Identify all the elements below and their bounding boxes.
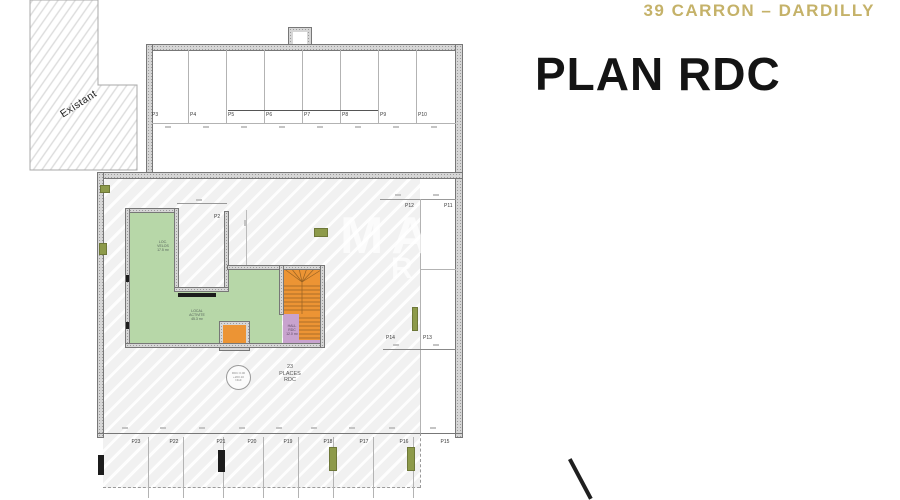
- stall-divider: [302, 50, 303, 123]
- wall-segment: [225, 212, 228, 291]
- dimension-text: [393, 126, 399, 128]
- dimension-text: [389, 427, 395, 429]
- dimension-text: [349, 427, 355, 429]
- parking-space-label: P13: [423, 335, 432, 341]
- parking-space-label: P19: [280, 439, 296, 445]
- stall-divider: [378, 50, 379, 123]
- stall-divider: [420, 199, 421, 433]
- parking-space-label: P5: [228, 112, 234, 118]
- slide: 39 CARRON – DARDILLY PLAN RDC Existant P…: [0, 0, 900, 500]
- existing-building-outline: [29, 0, 141, 174]
- parking-space-label: P8: [342, 112, 348, 118]
- wall-segment: [280, 266, 283, 314]
- places-count-note: 23 PLACES RDC: [268, 364, 312, 384]
- level-marker: RDC 0.00 +200.10 NGF: [226, 365, 251, 390]
- wall-segment: [321, 266, 324, 347]
- dimension-text: [355, 126, 361, 128]
- dim-line: [246, 210, 247, 265]
- landscape-strip: [330, 448, 336, 470]
- wall-lower-left: [98, 173, 103, 437]
- parking-space-label: P3: [152, 112, 158, 118]
- stall-divider: [420, 269, 456, 270]
- dimension-text: [393, 344, 399, 346]
- stall-divider: [298, 437, 299, 498]
- dimension-text: [433, 194, 439, 196]
- door-mark: [126, 275, 129, 282]
- pointer-mark: [568, 458, 593, 500]
- parking-space-label: P4: [190, 112, 196, 118]
- stall-divider: [183, 437, 184, 498]
- parking-space-label: P10: [418, 112, 427, 118]
- stall-front-line: [98, 433, 462, 434]
- dimension-text: [279, 126, 285, 128]
- dimension-text: [433, 344, 439, 346]
- room-green-strip: [228, 269, 282, 293]
- wall-segment: [175, 288, 228, 291]
- landscape-strip: [100, 244, 106, 254]
- canopy-bar: [178, 293, 216, 297]
- parking-space-label: P9: [380, 112, 386, 118]
- stall-divider: [148, 437, 149, 498]
- stall-divider: [416, 50, 417, 123]
- level-marker-text: RDC 0.00 +200.10 NGF: [232, 372, 245, 383]
- wall-segment: [126, 209, 177, 212]
- dimension-text: [241, 126, 247, 128]
- parking-space-label: P2: [214, 214, 220, 220]
- property-dash-line: [420, 433, 421, 488]
- stall-front-line: [152, 123, 456, 124]
- parking-space-label: P15: [437, 439, 453, 445]
- parking-space-label: P12: [405, 203, 414, 209]
- stall-front-line: [383, 349, 456, 350]
- landscape-strip: [101, 186, 109, 192]
- wall-segment: [126, 344, 324, 347]
- dimension-text: [122, 427, 128, 429]
- parking-space-label: P11: [444, 203, 453, 209]
- column: [218, 450, 225, 472]
- parking-space-label: P7: [304, 112, 310, 118]
- stall-divider: [373, 437, 374, 498]
- page-title: PLAN RDC: [535, 47, 781, 101]
- parking-space-label: P6: [266, 112, 272, 118]
- parking-space-label: P18: [320, 439, 336, 445]
- parking-space-label: P20: [244, 439, 260, 445]
- wall-lower-top: [98, 173, 462, 178]
- parking-space-label: P16: [396, 439, 412, 445]
- parking-space-label: P22: [166, 439, 182, 445]
- dim-line: [380, 199, 456, 200]
- parking-space-label: P21: [213, 439, 229, 445]
- dimension-text: [395, 194, 401, 196]
- dimension-text: [160, 427, 166, 429]
- dimension-text: [196, 199, 202, 201]
- stall-divider: [263, 437, 264, 498]
- parking-space-label: P17: [356, 439, 372, 445]
- dimension-text: [276, 427, 282, 429]
- door-mark: [126, 322, 129, 329]
- room-label-bike: LOC. VELOS 17.5 m²: [150, 240, 176, 253]
- dimension-text: [244, 220, 246, 226]
- dimension-text: [199, 427, 205, 429]
- room-label-main: LOCAL ACTIVITE 45.3 m²: [184, 309, 210, 322]
- room-label-hall: HALL RDC 12.0 m²: [279, 324, 305, 337]
- dimension-text: [311, 427, 317, 429]
- dimension-text: [431, 126, 437, 128]
- wall-segment: [228, 266, 324, 269]
- dimension-text: [430, 427, 436, 429]
- landscape-strip: [408, 448, 414, 470]
- dim-line: [177, 203, 227, 204]
- stall-divider: [340, 50, 341, 123]
- landscape-strip: [413, 308, 417, 330]
- dimension-text: [165, 126, 171, 128]
- stall-front-dark-line: [228, 110, 378, 111]
- dimension-text: [317, 126, 323, 128]
- stall-divider: [188, 50, 189, 123]
- wall-top: [147, 45, 462, 50]
- dimension-text: [239, 427, 245, 429]
- column: [98, 455, 104, 475]
- stall-divider: [264, 50, 265, 123]
- wall-right: [456, 45, 462, 437]
- room-green-left: [129, 212, 175, 345]
- parking-space-label: P14: [386, 335, 395, 341]
- parking-space-label: P23: [128, 439, 144, 445]
- landscape-strip: [315, 229, 327, 236]
- dimension-text: [203, 126, 209, 128]
- project-title: 39 CARRON – DARDILLY: [643, 1, 875, 21]
- stall-divider: [226, 50, 227, 123]
